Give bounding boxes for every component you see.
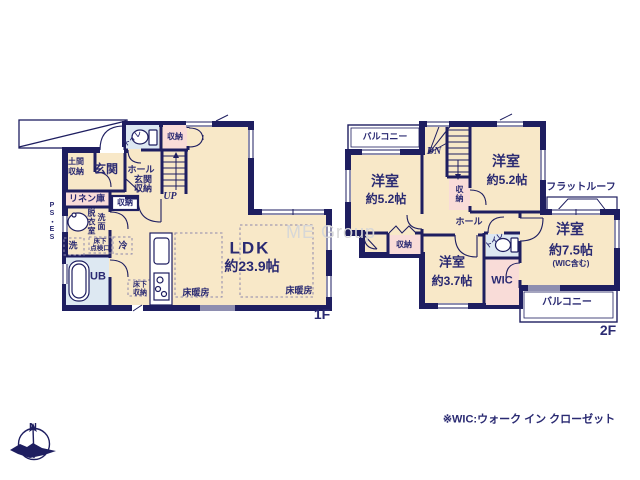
label-balcony-tl: バルコニー xyxy=(363,133,408,142)
label-senmen: 洗面 xyxy=(97,213,105,231)
label-room-main: 洋室 xyxy=(556,222,584,236)
sink-icon xyxy=(68,213,88,231)
label-heating-right: 床暖房 xyxy=(285,287,312,296)
label-hall-2f: ホール xyxy=(455,218,482,227)
label-inspection-2: 点検口 xyxy=(90,246,110,253)
label-heating-left: 床暖房 xyxy=(182,289,209,298)
label-laundry: 洗 xyxy=(68,242,77,251)
kitchen-counter-icon xyxy=(150,233,172,305)
label-doma-1: 土間 xyxy=(68,158,84,166)
label-room-small-size: 約3.7帖 xyxy=(432,275,473,287)
label-balcony-br: バルコニー xyxy=(542,298,592,308)
label-genkan: 玄関 xyxy=(94,163,118,175)
label-doma-2: 収納 xyxy=(68,168,84,176)
label-room-small: 洋室 xyxy=(439,256,465,269)
label-closet-small: 収納 xyxy=(117,199,133,207)
floor1-plan xyxy=(19,115,332,311)
label-hall-1: ホール xyxy=(127,166,154,175)
label-room-tr: 洋室 xyxy=(492,154,520,168)
label-closet-left: 収納 xyxy=(396,241,412,249)
watermark-text: ME Group xyxy=(286,222,376,243)
label-room-left: 洋室 xyxy=(371,174,399,188)
wic-footnote: ※WIC:ウォーク イン クローゼット xyxy=(443,415,615,426)
label-ub: UB xyxy=(90,272,106,283)
label-datsui: 脱衣室 xyxy=(87,209,95,236)
label-room-left-size: 約5.2帖 xyxy=(366,193,407,205)
label-fridge: 冷 xyxy=(118,242,127,251)
label-ldk-size: 約23.9帖 xyxy=(224,259,279,273)
label-up: UP xyxy=(163,192,176,202)
label-linen: リネン庫 xyxy=(69,195,105,204)
label-floor2-tag: 2F xyxy=(600,323,616,337)
label-room-main-size: 約7.5帖 xyxy=(549,244,593,257)
label-underfloor-1: 床下 xyxy=(133,282,147,289)
label-ldk: LDK xyxy=(230,240,271,257)
label-room-tr-size: 約5.2帖 xyxy=(487,174,528,186)
compass-n-label: N xyxy=(29,423,37,434)
label-floor1-tag: 1F xyxy=(314,307,330,321)
label-hall-3: 収納 xyxy=(134,185,152,194)
label-room-main-note: (WIC含む) xyxy=(553,260,590,268)
porch xyxy=(19,120,127,148)
label-wic: WIC xyxy=(491,276,512,287)
label-closet-stairs: 収納 xyxy=(455,185,463,203)
label-underfloor-2: 収納 xyxy=(133,290,147,297)
bathtub-icon xyxy=(69,261,89,301)
label-dn: DN xyxy=(427,147,441,157)
label-closet-top: 収納 xyxy=(167,133,183,141)
label-flat-roof: フラットルーフ xyxy=(546,183,615,193)
label-ps-es: PS・ES xyxy=(49,202,56,242)
